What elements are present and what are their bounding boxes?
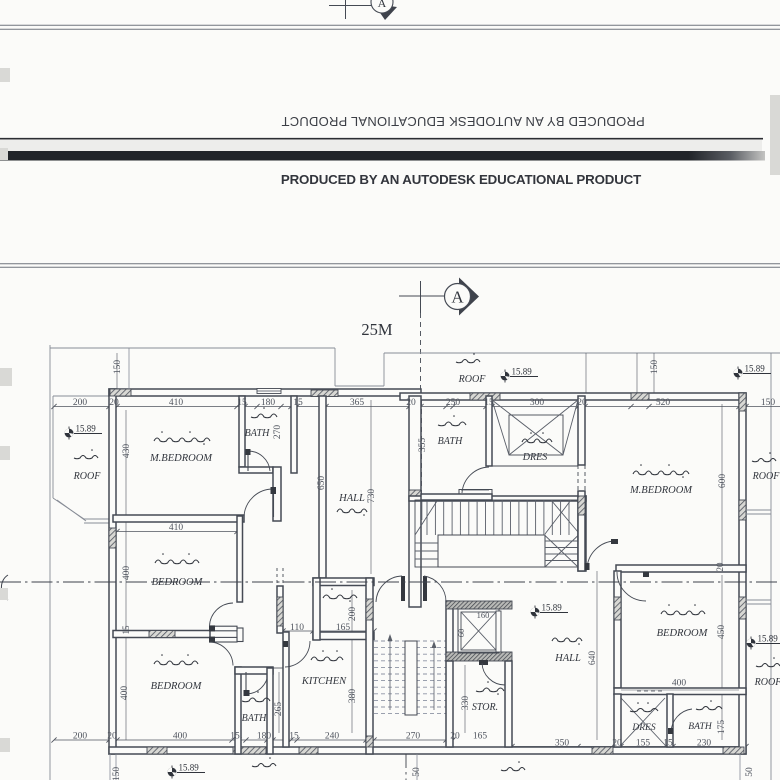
svg-text:150: 150 (113, 360, 123, 375)
svg-text:450: 450 (717, 625, 727, 640)
svg-text:50: 50 (745, 767, 755, 777)
svg-text:20: 20 (715, 562, 725, 572)
svg-text:BEDROOM: BEDROOM (152, 577, 204, 588)
svg-text:180: 180 (257, 732, 272, 742)
svg-text:175: 175 (717, 720, 727, 735)
svg-text:M.BEDROOM: M.BEDROOM (149, 453, 213, 464)
svg-text:BATH: BATH (242, 713, 267, 724)
svg-text:410: 410 (169, 523, 184, 533)
svg-text:365: 365 (350, 398, 365, 408)
svg-text:200: 200 (73, 732, 88, 742)
svg-text:BEDROOM: BEDROOM (657, 628, 709, 639)
svg-text:150: 150 (112, 767, 122, 780)
svg-text:ROOF: ROOF (458, 374, 487, 385)
svg-text:230: 230 (697, 739, 712, 749)
svg-text:20: 20 (107, 732, 117, 742)
svg-text:165: 165 (473, 732, 488, 742)
svg-text:300: 300 (530, 398, 545, 408)
svg-text:240: 240 (325, 732, 340, 742)
svg-text:15: 15 (289, 732, 299, 742)
svg-text:265: 265 (274, 702, 284, 717)
svg-text:640: 640 (588, 651, 598, 666)
svg-text:380: 380 (348, 689, 358, 704)
svg-text:400: 400 (122, 566, 132, 581)
svg-text:20: 20 (450, 732, 460, 742)
svg-text:PRODUCED BY AN AUTODESK EDUCAT: PRODUCED BY AN AUTODESK EDUCATIONAL PROD… (281, 114, 645, 129)
svg-text:150: 150 (650, 360, 660, 375)
svg-text:ROOF: ROOF (752, 471, 780, 482)
svg-text:50: 50 (412, 767, 422, 777)
svg-text:270: 270 (273, 425, 283, 440)
svg-text:400: 400 (672, 679, 687, 689)
svg-text:DRES: DRES (631, 723, 655, 733)
svg-text:200: 200 (348, 607, 358, 622)
svg-text:20: 20 (577, 398, 587, 408)
svg-text:BEDROOM: BEDROOM (151, 681, 203, 692)
svg-text:ROOF: ROOF (73, 471, 102, 482)
svg-text:60: 60 (456, 629, 466, 638)
svg-text:HALL: HALL (338, 493, 365, 504)
svg-text:180: 180 (261, 398, 276, 408)
svg-text:PRODUCED BY AN AUTODESK EDUCAT: PRODUCED BY AN AUTODESK EDUCATIONAL PROD… (281, 172, 641, 187)
svg-text:20: 20 (406, 398, 416, 408)
svg-text:BATH: BATH (688, 722, 713, 732)
svg-text:165: 165 (336, 623, 351, 633)
svg-text:355: 355 (418, 438, 428, 453)
svg-text:15.89: 15.89 (76, 423, 97, 433)
svg-text:430: 430 (122, 444, 132, 459)
svg-text:M.BEDROOM: M.BEDROOM (629, 485, 693, 496)
svg-text:330: 330 (461, 696, 471, 711)
svg-text:650: 650 (317, 476, 327, 491)
svg-text:250: 250 (446, 398, 461, 408)
svg-text:350: 350 (555, 739, 570, 749)
svg-text:110: 110 (290, 623, 304, 633)
svg-text:15.89: 15.89 (179, 762, 200, 772)
svg-text:155: 155 (636, 739, 651, 749)
svg-text:400: 400 (120, 686, 130, 701)
svg-text:410: 410 (169, 398, 184, 408)
svg-text:15.89: 15.89 (542, 602, 563, 612)
svg-text:STOR.: STOR. (472, 702, 498, 713)
svg-text:15.89: 15.89 (512, 366, 533, 376)
svg-text:DRES: DRES (522, 452, 547, 463)
svg-text:15: 15 (293, 398, 303, 408)
svg-text:ROOF: ROOF (754, 677, 780, 688)
svg-text:BATH: BATH (245, 428, 270, 439)
svg-text:KITCHEN: KITCHEN (301, 676, 347, 687)
svg-text:A: A (378, 0, 387, 10)
svg-text:15: 15 (484, 398, 494, 408)
svg-text:520: 520 (656, 398, 671, 408)
svg-text:730: 730 (367, 489, 377, 504)
svg-text:BATH: BATH (438, 436, 463, 447)
svg-text:20: 20 (109, 398, 119, 408)
svg-text:15: 15 (663, 739, 673, 749)
svg-text:270: 270 (406, 732, 421, 742)
svg-text:15: 15 (230, 732, 240, 742)
svg-text:A: A (451, 288, 464, 307)
svg-text:15.89: 15.89 (745, 363, 766, 373)
svg-text:25M: 25M (361, 320, 393, 339)
svg-text:400: 400 (173, 732, 188, 742)
svg-text:160: 160 (477, 610, 490, 620)
svg-text:20: 20 (612, 739, 622, 749)
svg-text:15: 15 (121, 625, 131, 635)
svg-text:HALL: HALL (554, 653, 581, 664)
svg-text:15: 15 (237, 398, 247, 408)
svg-text:150: 150 (761, 398, 776, 408)
svg-text:15.89: 15.89 (758, 633, 779, 643)
svg-text:600: 600 (718, 474, 728, 489)
svg-text:200: 200 (73, 398, 88, 408)
